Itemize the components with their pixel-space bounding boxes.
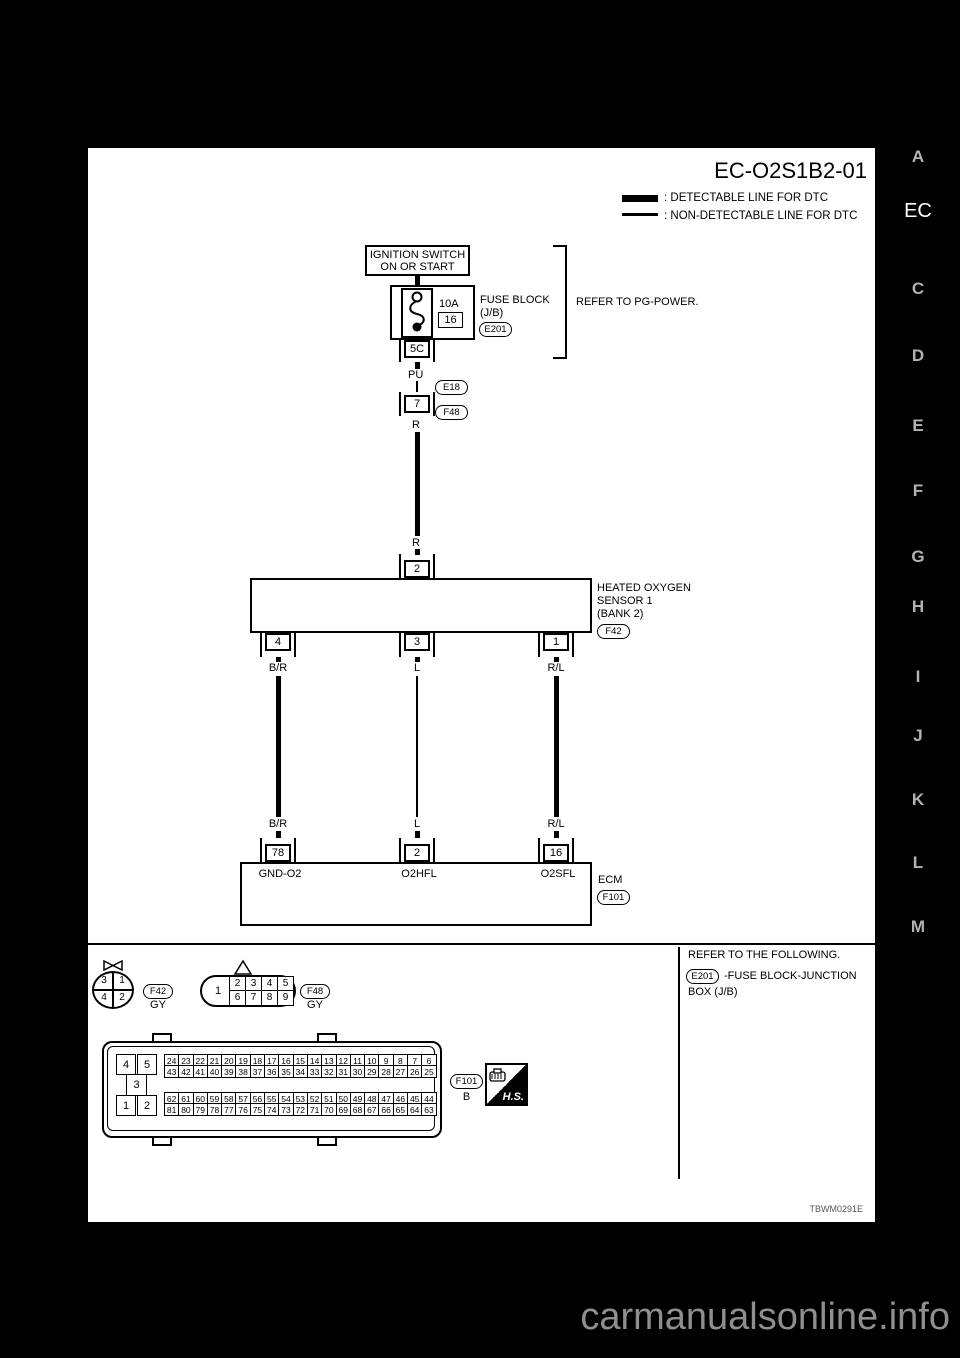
ecm-pin-78: 78	[260, 838, 296, 862]
f101-cavity: 34	[293, 1065, 308, 1078]
hs-connector-icon	[489, 1068, 507, 1082]
f101-cavity: 42	[178, 1065, 193, 1078]
sensor-pin-2: 2	[399, 554, 435, 578]
f48-grid-top: 2345	[229, 976, 293, 991]
footer-e201-ref: E201	[686, 969, 719, 984]
wire-stub	[276, 831, 281, 838]
f101-cavity: 73	[278, 1103, 293, 1116]
f101-cavity: 78	[207, 1103, 222, 1116]
wire-color-br-top: B/R	[264, 662, 292, 675]
f101-cavity: 40	[207, 1065, 222, 1078]
fuse-block-label2: (J/B)	[480, 307, 503, 320]
f101-cavity: 79	[193, 1103, 208, 1116]
connector-ref-f42: F42	[597, 624, 630, 639]
sidebar-letter-f: F	[901, 481, 935, 501]
connector-ref-f48: F48	[435, 405, 468, 420]
hs-badge-text: H.S.	[503, 1091, 524, 1103]
f101-cavity: 38	[235, 1065, 250, 1078]
ignition-switch-box: IGNITION SWITCH ON OR START	[365, 245, 470, 276]
f101-cavity: 80	[178, 1103, 193, 1116]
f101-pad-cavity: 1	[116, 1095, 136, 1116]
ecm-terminal-o2hfl: O2HFL	[391, 868, 447, 881]
fuse-block-label1: FUSE BLOCK	[480, 294, 550, 307]
legend-thin-label: : NON-DETECTABLE LINE FOR DTC	[664, 210, 857, 222]
sidebar-letter-m: M	[901, 917, 935, 937]
footer-refer-line: REFER TO THE FOLLOWING.	[688, 949, 840, 962]
ecm-terminal-gnd-o2: GND-O2	[252, 868, 308, 881]
sidebar-letter-i: I	[901, 667, 935, 687]
f101-cavity: 77	[221, 1103, 236, 1116]
sidebar-letter-k: K	[901, 790, 935, 810]
f101-cavity: 31	[336, 1065, 351, 1078]
wire-r-thick	[415, 432, 420, 536]
f48-cavity: 9	[277, 990, 294, 1006]
sensor-label-line2: SENSOR 1	[597, 595, 653, 608]
sensor-pin-1: 1	[538, 633, 574, 657]
wire-rl-long	[554, 676, 559, 817]
f101-cavity: 30	[350, 1065, 365, 1078]
connector-ref-f101: F101	[597, 890, 630, 905]
fuse-number: 16	[438, 312, 463, 328]
f42-connector-face: 3 1 4 2	[92, 971, 134, 1009]
legend-thin-line-sample	[622, 213, 658, 216]
pin-number: 78	[265, 844, 291, 862]
f48-cavity: 6	[229, 990, 246, 1006]
jb-pin-5c: 5C	[399, 340, 435, 362]
f101-pad-cavity: 5	[137, 1054, 157, 1075]
f101-cavity: 28	[378, 1065, 393, 1078]
sensor-label-line1: HEATED OXYGEN	[597, 582, 691, 595]
f101-cavity: 25	[421, 1065, 436, 1078]
sidebar-letter-h: H	[901, 597, 935, 617]
f101-grid1-row2: 43424140393837363534333231302928272625	[164, 1065, 436, 1077]
f101-cavity: 71	[307, 1103, 322, 1116]
f42-ref-label: F42	[143, 984, 173, 999]
sensor-label-line3: (BANK 2)	[597, 608, 643, 621]
wire-pu-thin	[416, 381, 418, 392]
f101-cavity: 69	[336, 1103, 351, 1116]
f101-ref-label: F101	[450, 1074, 483, 1089]
wire-color-r: R	[412, 419, 420, 432]
f101-cavity: 37	[250, 1065, 265, 1078]
footer-jb-line: BOX (J/B)	[688, 986, 738, 999]
sidebar-letter-e: E	[901, 416, 935, 436]
sidebar-letter-j: J	[901, 726, 935, 746]
wire-stub	[415, 831, 420, 838]
f101-cavity: 68	[350, 1103, 365, 1116]
diagram-title: EC-O2S1B2-01	[647, 158, 867, 184]
sidebar-letter-c: C	[901, 279, 935, 299]
pin-number: 7	[404, 395, 430, 413]
wire-color-l-bottom: L	[403, 818, 431, 831]
f48-cavity-1: 1	[210, 985, 226, 997]
f101-cavity: 63	[421, 1103, 436, 1116]
legend-thick-line-sample	[622, 195, 658, 202]
divider	[94, 989, 132, 991]
sidebar-letter-a: A	[901, 147, 935, 167]
inline-connector-pin-7: 7	[399, 392, 435, 416]
f101-cavity: 39	[221, 1065, 236, 1078]
wire-l-long	[416, 676, 418, 817]
heated-oxygen-sensor-box	[250, 578, 592, 633]
f101-cavity: 29	[364, 1065, 379, 1078]
f101-cavity: 36	[264, 1065, 279, 1078]
sidebar-letter-ec: EC	[901, 200, 935, 223]
f101-cavity: 32	[321, 1065, 336, 1078]
f101-cavity: 70	[321, 1103, 336, 1116]
f101-cavity: 74	[264, 1103, 279, 1116]
f101-cavity: 75	[250, 1103, 265, 1116]
footer-fuse-block-line: -FUSE BLOCK-JUNCTION	[724, 970, 857, 983]
f42-key-icon	[103, 960, 123, 971]
f48-ref-label: F48	[300, 984, 330, 999]
footer-divider-line	[678, 947, 680, 1179]
wire-color-rl-top: R/L	[542, 662, 570, 675]
wire-color-br-bottom: B/R	[264, 818, 292, 831]
pin-number: 3	[404, 633, 430, 651]
ignition-switch-line2: ON OR START	[367, 261, 468, 274]
wire-stub	[415, 362, 420, 369]
f101-cavity: 81	[164, 1103, 179, 1116]
pin-number: 4	[265, 633, 291, 651]
figure-code: TBWM0291E	[783, 1204, 863, 1214]
pin-number: 2	[404, 560, 430, 578]
f101-grid2-row2: 81807978777675747372717069686766656463	[164, 1103, 436, 1115]
refer-pg-power-note: REFER TO PG-POWER.	[576, 296, 698, 309]
sensor-pin-4: 4	[260, 633, 296, 657]
f101-cavity: 64	[407, 1103, 422, 1116]
f101-cavity: 65	[393, 1103, 408, 1116]
f101-cavity: 66	[378, 1103, 393, 1116]
connector-ref-e18: E18	[435, 380, 468, 395]
f101-cavity: 76	[235, 1103, 250, 1116]
f101-pad-cavity: 3	[126, 1074, 147, 1096]
ecm-pin-16: 16	[538, 838, 574, 862]
sensor-pin-3: 3	[399, 633, 435, 657]
fuse-rating: 10A	[439, 298, 459, 311]
manual-page-scan: A EC C D E F G H I J K L M carmanualsonl…	[0, 0, 960, 1358]
f101-color: B	[450, 1091, 483, 1104]
site-watermark: carmanualsonline.info	[580, 1296, 950, 1339]
f101-cavity: 67	[364, 1103, 379, 1116]
pin-number: 5C	[404, 340, 430, 358]
f42-cavity: 3	[96, 975, 112, 986]
pin-number: 2	[404, 844, 430, 862]
f48-key-icon	[233, 959, 253, 975]
refer-bracket	[553, 245, 567, 359]
ecm-pin-2: 2	[399, 838, 435, 862]
sidebar-letter-d: D	[901, 346, 935, 366]
f42-cavity: 2	[114, 992, 130, 1003]
wire-color-rl-bottom: R/L	[542, 818, 570, 831]
f101-cavity: 41	[193, 1065, 208, 1078]
wire-color-l-top: L	[403, 662, 431, 675]
ecm-terminal-o2sfl: O2SFL	[530, 868, 586, 881]
sidebar-letter-g: G	[901, 547, 935, 567]
f101-cavity: 33	[307, 1065, 322, 1078]
connector-ref-e201: E201	[479, 322, 512, 337]
ecm-label: ECM	[598, 874, 622, 887]
legend-thick-label: : DETECTABLE LINE FOR DTC	[664, 192, 828, 204]
f101-pad-cavity: 2	[137, 1095, 157, 1116]
f101-cavity: 27	[393, 1065, 408, 1078]
hs-badge: H.S.	[485, 1063, 528, 1106]
ecm-box: GND-O2 O2HFL O2SFL	[240, 862, 592, 926]
footer-separator-line	[88, 943, 875, 945]
fuse-symbol	[401, 288, 433, 338]
pin-number: 1	[543, 633, 569, 651]
f101-cavity: 43	[164, 1065, 179, 1078]
f48-cavity: 7	[245, 990, 262, 1006]
f48-color: GY	[300, 999, 330, 1012]
sidebar-letter-l: L	[901, 853, 935, 873]
wire-stub	[554, 831, 559, 838]
wiring-diagram-page: EC-O2S1B2-01 : DETECTABLE LINE FOR DTC :…	[88, 148, 875, 1222]
f101-pad-cavity: 4	[116, 1054, 136, 1075]
f101-cavity: 26	[407, 1065, 422, 1078]
f42-color: GY	[143, 999, 173, 1012]
f42-cavity: 1	[114, 975, 130, 986]
f101-cavity: 35	[278, 1065, 293, 1078]
wire-br-long	[276, 676, 281, 817]
f42-cavity: 4	[96, 992, 112, 1003]
f48-cavity: 8	[261, 990, 278, 1006]
f101-cavity: 72	[293, 1103, 308, 1116]
f48-grid-bottom: 6789	[229, 990, 293, 1005]
pin-number: 16	[543, 844, 569, 862]
